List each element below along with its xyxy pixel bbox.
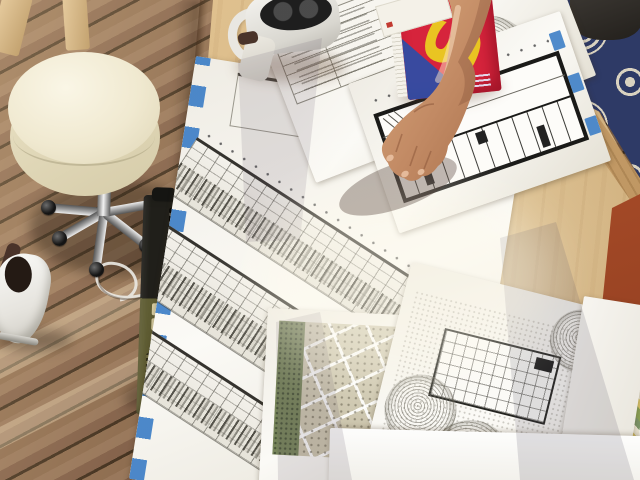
- pointing-arm: [0, 0, 640, 480]
- photo-scene: S: [0, 0, 640, 480]
